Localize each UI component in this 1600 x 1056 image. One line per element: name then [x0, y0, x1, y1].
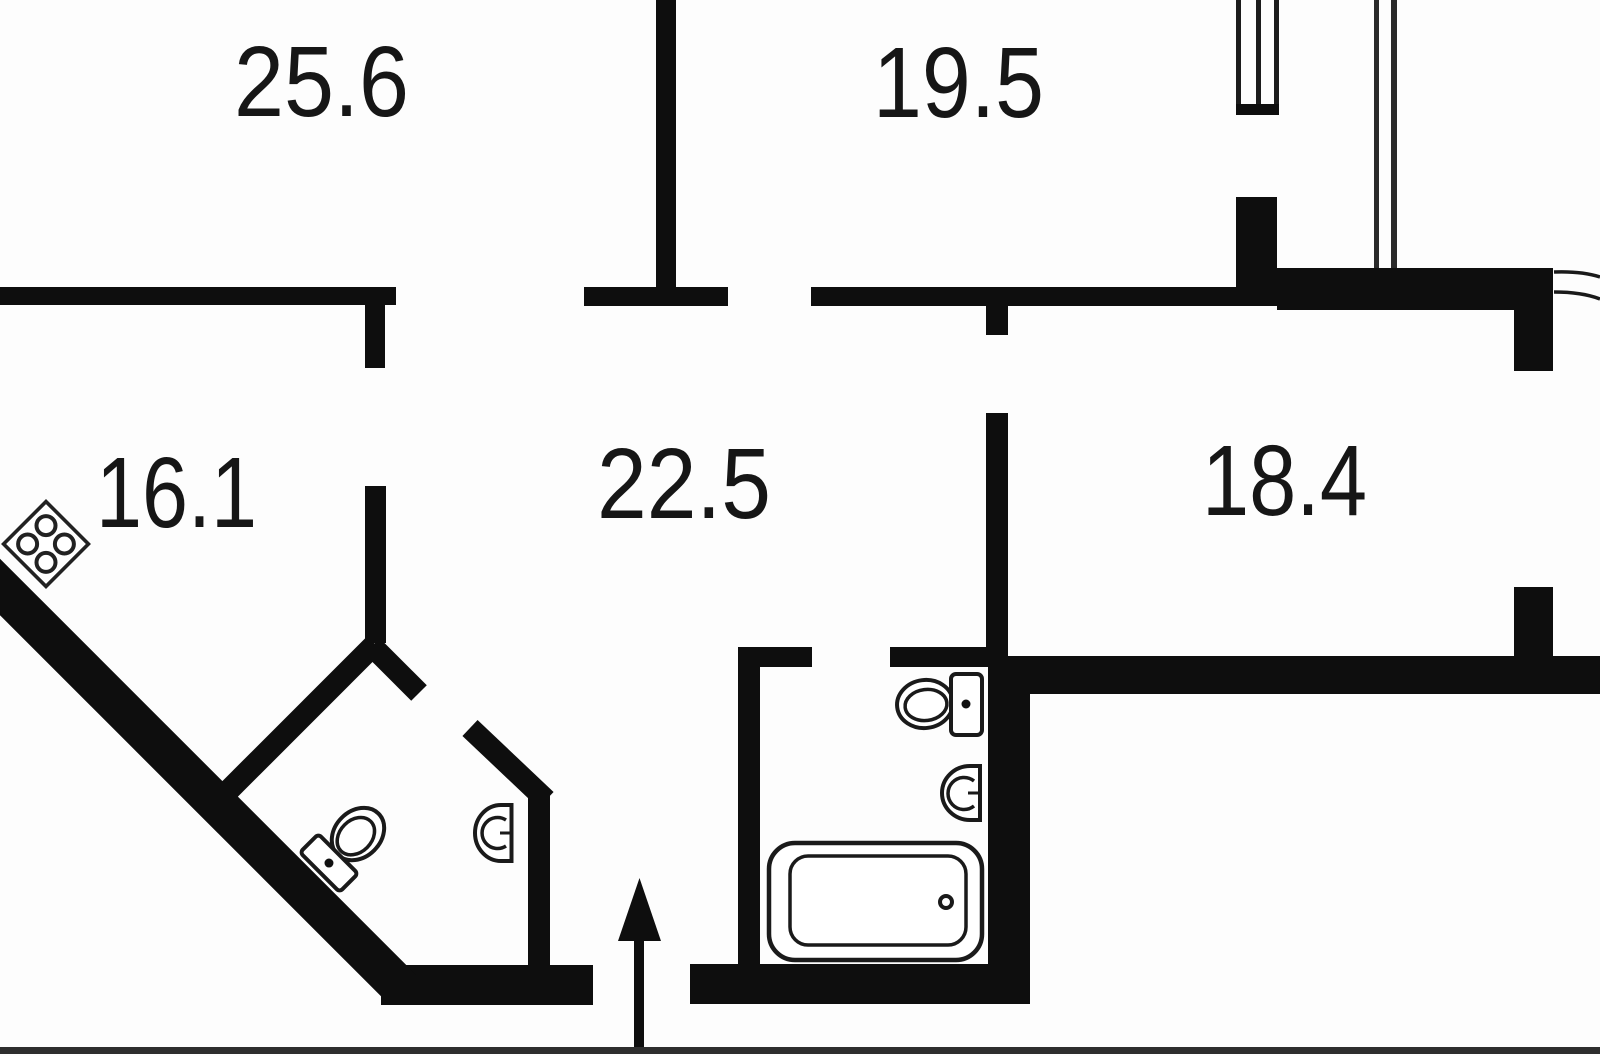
- svg-text:22.5: 22.5: [597, 428, 771, 540]
- svg-text:25.6: 25.6: [234, 26, 409, 138]
- svg-text:19.5: 19.5: [873, 27, 1044, 139]
- svg-text:18.4: 18.4: [1202, 425, 1367, 537]
- svg-text:16.1: 16.1: [96, 437, 257, 549]
